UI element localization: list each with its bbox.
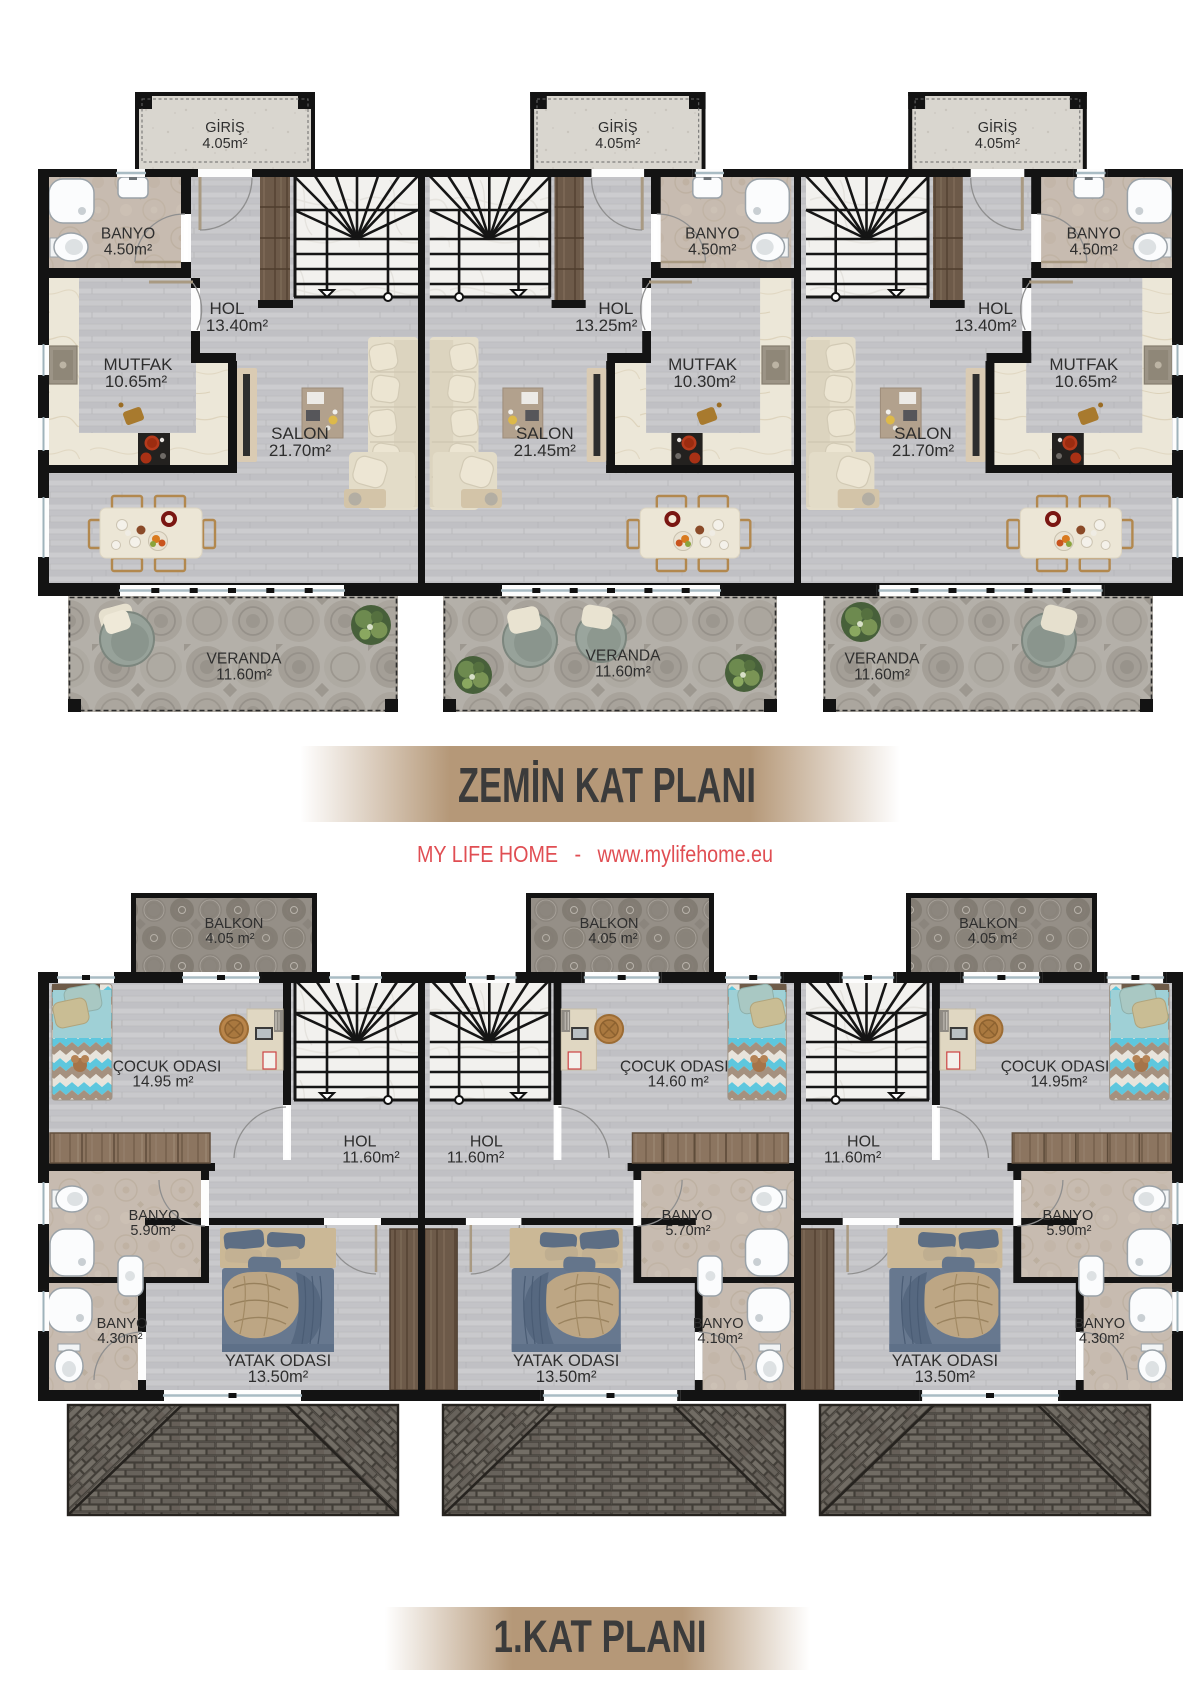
svg-text:4.50m²: 4.50m² <box>1070 241 1118 258</box>
svg-text:11.60m²: 11.60m² <box>342 1150 400 1167</box>
svg-text:BALKON: BALKON <box>959 916 1018 932</box>
svg-text:13.50m²: 13.50m² <box>248 1368 309 1386</box>
svg-text:VERANDA: VERANDA <box>586 647 662 664</box>
svg-text:BANYO: BANYO <box>1074 1316 1125 1332</box>
svg-text:13.40m²: 13.40m² <box>954 316 1017 335</box>
svg-text:4.05m²: 4.05m² <box>975 136 1020 152</box>
svg-text:BANYO: BANYO <box>1043 1208 1094 1224</box>
svg-text:14.95 m²: 14.95 m² <box>132 1073 193 1090</box>
svg-text:14.60 m²: 14.60 m² <box>648 1073 709 1090</box>
svg-text:BALKON: BALKON <box>580 916 639 932</box>
svg-text:MY LIFE HOME - www.mylifeh: MY LIFE HOME - www.mylifehome.eu <box>417 841 773 867</box>
svg-text:21.45m²: 21.45m² <box>514 441 577 460</box>
svg-text:BANYO: BANYO <box>693 1316 744 1332</box>
svg-text:BANYO: BANYO <box>685 225 739 242</box>
svg-text:13.50m²: 13.50m² <box>536 1368 597 1386</box>
svg-text:4.30m²: 4.30m² <box>1079 1331 1124 1347</box>
svg-text:BANYO: BANYO <box>101 225 155 242</box>
svg-text:4.05 m²: 4.05 m² <box>205 931 254 947</box>
svg-text:HOL: HOL <box>470 1134 503 1151</box>
svg-text:4.05m²: 4.05m² <box>202 136 247 152</box>
svg-text:10.65m²: 10.65m² <box>105 372 168 391</box>
svg-text:11.60m²: 11.60m² <box>595 663 651 680</box>
svg-text:10.30m²: 10.30m² <box>673 372 736 391</box>
svg-text:21.70m²: 21.70m² <box>269 441 332 460</box>
svg-text:ZEMİN KAT PLANI: ZEMİN KAT PLANI <box>458 759 756 813</box>
svg-text:4.50m²: 4.50m² <box>688 241 736 258</box>
svg-text:BANYO: BANYO <box>1067 225 1121 242</box>
svg-text:13.50m²: 13.50m² <box>915 1368 976 1386</box>
svg-text:5.70m²: 5.70m² <box>665 1223 710 1239</box>
svg-text:11.60m²: 11.60m² <box>447 1150 505 1167</box>
svg-text:HOL: HOL <box>847 1134 880 1151</box>
svg-text:GİRİŞ: GİRİŞ <box>205 118 244 136</box>
svg-text:BANYO: BANYO <box>97 1316 148 1332</box>
svg-text:4.05 m²: 4.05 m² <box>588 931 637 947</box>
svg-text:13.40m²: 13.40m² <box>206 316 269 335</box>
svg-text:1.KAT PLANI: 1.KAT PLANI <box>494 1611 707 1662</box>
svg-text:BALKON: BALKON <box>205 916 264 932</box>
svg-text:11.60m²: 11.60m² <box>824 1150 882 1167</box>
svg-text:4.05m²: 4.05m² <box>595 136 640 152</box>
svg-text:GİRİŞ: GİRİŞ <box>598 118 637 136</box>
svg-text:BANYO: BANYO <box>129 1208 180 1224</box>
svg-text:GİRİŞ: GİRİŞ <box>978 118 1017 136</box>
svg-text:HOL: HOL <box>344 1134 377 1151</box>
svg-text:4.30m²: 4.30m² <box>97 1331 142 1347</box>
svg-text:5.90m²: 5.90m² <box>130 1223 175 1239</box>
svg-text:21.70m²: 21.70m² <box>892 441 955 460</box>
svg-text:4.10m²: 4.10m² <box>698 1331 743 1347</box>
svg-text:14.95m²: 14.95m² <box>1031 1073 1088 1090</box>
svg-text:VERANDA: VERANDA <box>207 650 283 667</box>
svg-text:10.65m²: 10.65m² <box>1055 372 1118 391</box>
svg-text:13.25m²: 13.25m² <box>575 316 638 335</box>
svg-text:VERANDA: VERANDA <box>845 650 921 667</box>
svg-text:5.90m²: 5.90m² <box>1046 1223 1091 1239</box>
svg-text:BANYO: BANYO <box>662 1208 713 1224</box>
svg-text:4.50m²: 4.50m² <box>104 241 152 258</box>
svg-text:11.60m²: 11.60m² <box>854 666 910 683</box>
svg-text:11.60m²: 11.60m² <box>216 666 272 683</box>
svg-text:4.05 m²: 4.05 m² <box>968 931 1017 947</box>
